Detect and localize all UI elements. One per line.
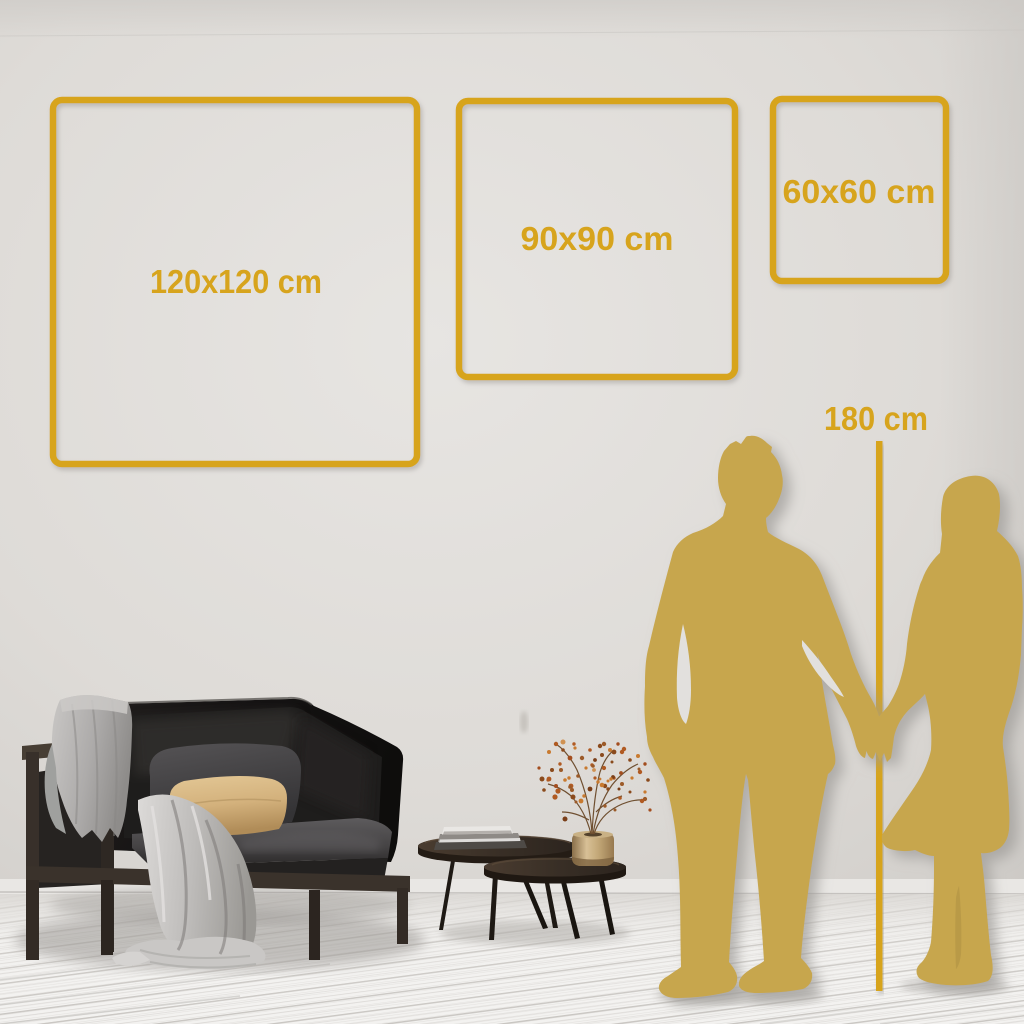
svg-text:60x60 cm: 60x60 cm xyxy=(783,173,936,210)
svg-text:180 cm: 180 cm xyxy=(824,400,928,437)
svg-text:120x120 cm: 120x120 cm xyxy=(150,263,322,300)
svg-text:90x90 cm: 90x90 cm xyxy=(521,220,674,257)
